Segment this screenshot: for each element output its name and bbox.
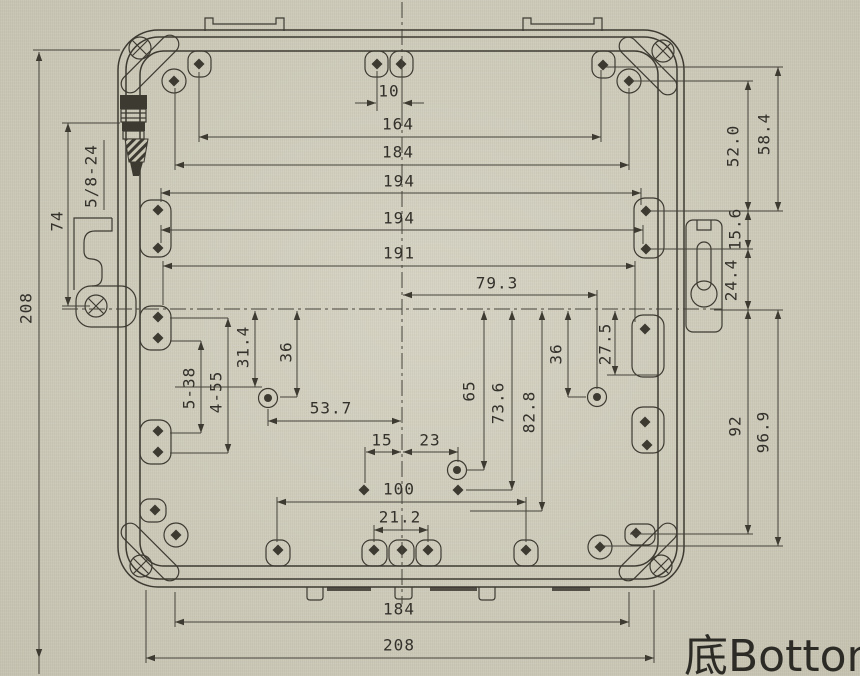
top-edge-tabs [205, 18, 602, 31]
keyhole-bracket-right [686, 220, 722, 332]
floor-screws [259, 388, 607, 496]
center-lines [62, 2, 722, 604]
thread-connector [120, 95, 148, 176]
technical-drawing-page: 1016418419419419179.353.7152310021.21842… [0, 0, 860, 676]
view-title: 底Botton [684, 620, 860, 676]
corner-screw-top-left [129, 37, 151, 59]
enclosure-bottom-view-drawing [0, 0, 860, 676]
bottom-edge-tabs [307, 587, 590, 600]
